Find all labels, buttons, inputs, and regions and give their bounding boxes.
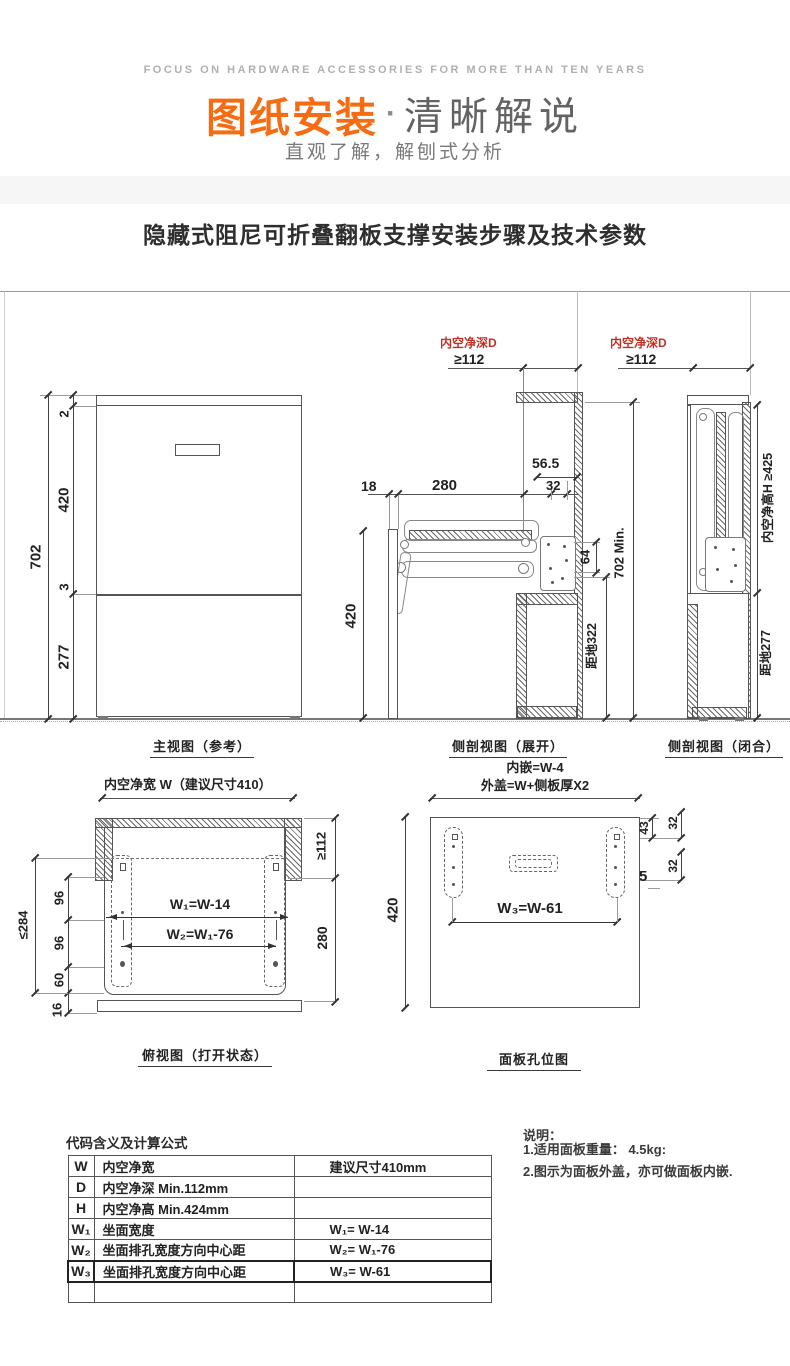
- table-cell-formula: W₁= W-14: [294, 1219, 491, 1240]
- table-row: H 内空净高 Min.424mm: [68, 1198, 491, 1219]
- table-cell-desc: 坐面排孔宽度方向中心距: [94, 1261, 294, 1282]
- banner-orange-text: 图纸安装: [206, 84, 378, 144]
- closed-cabinet-top-bar: [687, 395, 749, 405]
- hinge-plate-right-dashed: [264, 855, 285, 987]
- extension-line: [389, 495, 390, 529]
- dim-label-43: 43: [638, 821, 650, 834]
- table-cell-desc: 坐面排孔宽度方向中心距: [94, 1240, 294, 1261]
- dim-line-w3: [452, 922, 617, 923]
- dim-line-depth-closed: [618, 368, 750, 369]
- dim-line-32b: [681, 852, 682, 880]
- table-cell-desc: 坐面宽度: [94, 1219, 294, 1240]
- flap-door-open: [388, 529, 398, 719]
- dim-label-18: 18: [361, 479, 377, 493]
- header-tagline: FOCUS ON HARDWARE ACCESSORIES FOR MORE T…: [0, 64, 790, 76]
- dim-label-277: 277: [57, 644, 72, 669]
- dim-tick: [677, 834, 685, 842]
- table-cell-desc: 内空净深 Min.112mm: [94, 1177, 294, 1198]
- extension-line: [398, 495, 399, 529]
- table-title: 代码含义及计算公式: [66, 1137, 188, 1151]
- pivot-point: [699, 413, 707, 421]
- dim-tick: [677, 876, 685, 884]
- table-row: [68, 1282, 491, 1303]
- mounting-bracket-closed: [705, 537, 746, 592]
- table-cell-code: W₂: [68, 1240, 94, 1261]
- sheet-top-border: [0, 291, 790, 292]
- dim-label-420: 420: [57, 487, 72, 512]
- formula-w1-label: W₁=W-14: [152, 897, 248, 911]
- table-cell-code: W: [68, 1156, 94, 1177]
- notes-item-2: 2.图示为面板外盖，亦可做面板内嵌.: [523, 1165, 732, 1178]
- table-cell-desc: [94, 1282, 294, 1303]
- dim-label-565: 56.5: [532, 456, 559, 470]
- front-divider-line: [96, 594, 302, 596]
- front-top-strip-line: [96, 405, 302, 406]
- dim-label-3: 3: [58, 583, 71, 590]
- fold-axis-dashed-line: [106, 858, 284, 859]
- dim-line-w1: [106, 917, 288, 918]
- extension-line: [617, 898, 618, 922]
- closed-cabinet-front-panel: [687, 405, 691, 594]
- closed-lower-left-hatch: [687, 604, 698, 718]
- handle-slot-inner-dashed: [515, 859, 552, 868]
- banner-gray-text: 清晰解说: [404, 86, 584, 142]
- table-cell-desc: 内空净高 Min.424mm: [94, 1198, 294, 1219]
- dim-line-panel-420: [405, 817, 406, 1008]
- hinge-hole-slot-right: [606, 827, 625, 898]
- extension-line: [288, 878, 335, 879]
- front-foot-right: [290, 716, 300, 720]
- dim-label-420-open: 420: [344, 603, 359, 628]
- extension-line: [304, 1001, 335, 1002]
- dim-line-702: [48, 395, 49, 719]
- dim-line-panel-width: [430, 798, 640, 799]
- dim-label-280-top-view: 280: [315, 926, 329, 949]
- depth-min-closed: ≥112: [626, 352, 656, 366]
- dim-label-96b: 96: [53, 936, 66, 950]
- header-banner: 图纸安装 · 清晰解说: [0, 84, 790, 144]
- front-handle: [175, 444, 220, 456]
- extension-line: [648, 888, 660, 889]
- extension-line: [35, 993, 68, 994]
- table-row: W₁ 坐面宽度 W₁= W-14: [68, 1219, 491, 1240]
- dim-label-96a: 96: [53, 891, 66, 905]
- folded-seat-panel-section: [716, 412, 726, 541]
- panel-inset-label: 内嵌=W-4: [455, 761, 615, 774]
- dim-tick: [331, 998, 339, 1006]
- wall-reference-line: [577, 291, 578, 392]
- dim-label-702min: 702 Min.: [613, 527, 626, 578]
- extension-line: [567, 481, 568, 500]
- extension-line: [35, 858, 106, 859]
- table-cell-code: W₁: [68, 1219, 94, 1240]
- pivot-point: [400, 540, 409, 549]
- extension-line: [68, 1013, 97, 1014]
- dim-line-64: [596, 542, 597, 573]
- dim-tick: [574, 364, 582, 372]
- lower-cabinet-bottom-hatch: [517, 706, 577, 718]
- banner-separator-dot: ·: [386, 97, 396, 131]
- hinge-arm-upper: [402, 539, 537, 553]
- dim-arrow: [280, 914, 291, 920]
- depth-label-closed: 内空净深D: [610, 337, 667, 349]
- dim-label-284: ≤284: [17, 911, 30, 940]
- extension-line: [68, 877, 104, 878]
- dim-label-panel-420: 420: [386, 897, 401, 922]
- hinge-hole-slot-left: [444, 827, 463, 898]
- dim-line-horizontal-open: [368, 494, 578, 495]
- mounting-bracket: [540, 536, 576, 591]
- extension-line: [68, 993, 104, 994]
- table-cell-code: [68, 1282, 94, 1303]
- dim-line-segments: [73, 395, 74, 719]
- dim-label-ground322: 距地322: [586, 623, 599, 669]
- front-foot-left: [98, 716, 108, 720]
- ground-hatch-line: [0, 721, 790, 722]
- depth-min-open: ≥112: [454, 352, 484, 366]
- panel-overlay-label: 外盖=W+侧板厚X2: [450, 779, 620, 792]
- dim-line-right-top-view: [335, 818, 336, 1002]
- dim-line-284: [35, 858, 36, 993]
- formula-w2-label: W₂=W₁-76: [150, 927, 250, 941]
- formula-w3-label: W₃=W-61: [475, 901, 585, 916]
- hinge-arm-lower: [401, 561, 534, 578]
- extension-line: [73, 594, 96, 595]
- table-cell-formula: [294, 1177, 491, 1198]
- dim-label-16: 16: [51, 1003, 64, 1017]
- dim-arrow: [121, 943, 132, 949]
- table-row: D 内空净深 Min.112mm: [68, 1177, 491, 1198]
- dim-arrow: [268, 943, 279, 949]
- dim-arrow: [106, 914, 117, 920]
- page: FOCUS ON HARDWARE ACCESSORIES FOR MORE T…: [0, 0, 790, 1366]
- table-cell-code: D: [68, 1177, 94, 1198]
- extension-line: [452, 898, 453, 922]
- table-row: W₂ 坐面排孔宽度方向中心距 W₂= W₁-76: [68, 1240, 491, 1261]
- side-wall-right-top-view: [284, 818, 302, 881]
- table-cell-code: W₃: [68, 1261, 94, 1282]
- dim-line-inner-height: [757, 405, 758, 593]
- dim-line-w2: [121, 946, 276, 947]
- dim-tick: [289, 794, 297, 802]
- table-row: W 内空净宽 建议尺寸410mm: [68, 1156, 491, 1177]
- dim-line-depth-open: [448, 368, 578, 369]
- dim-label-280-open: 280: [432, 478, 457, 493]
- table-cell-formula: W₃= W-61: [294, 1261, 491, 1282]
- inner-width-label: 内空净宽 W（建议尺寸410）: [104, 778, 272, 791]
- top-view-caption: 俯视图（打开状态）: [138, 1045, 272, 1067]
- dim-label-64: 64: [579, 550, 592, 564]
- extension-line: [73, 406, 96, 407]
- closed-foot: [699, 717, 708, 721]
- folded-arm-outline: [728, 412, 744, 543]
- side-closed-caption: 侧剖视图（闭合）: [665, 736, 783, 758]
- dim-label-32b: 32: [667, 859, 679, 872]
- extension-line: [640, 838, 682, 839]
- extension-line: [68, 967, 104, 968]
- closed-foot: [735, 717, 744, 721]
- dim-label-inner-height: 内空净高H ≥425: [762, 453, 775, 543]
- pivot-point: [521, 538, 530, 547]
- dim-label-ground277: 距地277: [760, 630, 773, 676]
- table-row-highlighted: W₃ 坐面排孔宽度方向中心距 W₃= W-61: [68, 1261, 491, 1282]
- dim-label-2: 2: [58, 410, 71, 417]
- dim-line-565: [537, 477, 578, 478]
- table-cell-desc: 内空净宽: [94, 1156, 294, 1177]
- table-cell-formula: W₂= W₁-76: [294, 1240, 491, 1261]
- table-cell-formula: [294, 1198, 491, 1219]
- front-view-caption: 主视图（参考）: [150, 736, 254, 758]
- spec-table: W 内空净宽 建议尺寸410mm D 内空净深 Min.112mm H 内空净高…: [67, 1155, 492, 1303]
- dim-label-32-open: 32: [546, 479, 560, 492]
- table-cell-formula: 建议尺寸410mm: [294, 1156, 491, 1177]
- dim-label-702: 702: [29, 544, 44, 569]
- table-cell-formula: [294, 1282, 491, 1303]
- notes-title: 说明：: [523, 1129, 562, 1142]
- flap-front-edge: [97, 1000, 302, 1012]
- dim-line-ground322: [606, 577, 607, 718]
- lower-cabinet-left-hatch: [516, 593, 527, 719]
- extension-line: [304, 818, 335, 819]
- dim-label-5: 5: [639, 869, 647, 884]
- dim-label-32a: 32: [667, 816, 679, 829]
- dim-label-60: 60: [53, 973, 66, 987]
- panel-view-caption: 面板孔位图: [487, 1049, 581, 1071]
- header-subtitle: 直观了解，解刨式分析: [0, 137, 790, 164]
- table-cell-code: H: [68, 1198, 94, 1219]
- cabinet-top-panel-section: [516, 392, 578, 403]
- wall-reference-line: [750, 291, 751, 395]
- dim-line-width: [100, 798, 295, 799]
- extension-line: [68, 920, 104, 921]
- dim-label-112-top-view: ≥112: [315, 832, 328, 860]
- page-title: 隐藏式阻尼可折叠翻板支撑安装步骤及技术参数: [0, 216, 790, 250]
- notes-item-1: 1.适用面板重量： 4.5kg:: [523, 1143, 666, 1156]
- side-open-caption: 侧剖视图（展开）: [449, 736, 567, 758]
- hinge-plate-left-dashed: [111, 855, 132, 987]
- dim-line-702min: [633, 402, 634, 718]
- dim-line-420-open: [363, 531, 364, 719]
- sheet-left-border: [4, 291, 5, 719]
- dim-tick: [401, 1004, 409, 1012]
- dim-tick: [634, 794, 642, 802]
- depth-label-open: 内空净深D: [440, 337, 497, 349]
- pivot-point: [518, 563, 529, 574]
- light-gray-band: [0, 176, 790, 204]
